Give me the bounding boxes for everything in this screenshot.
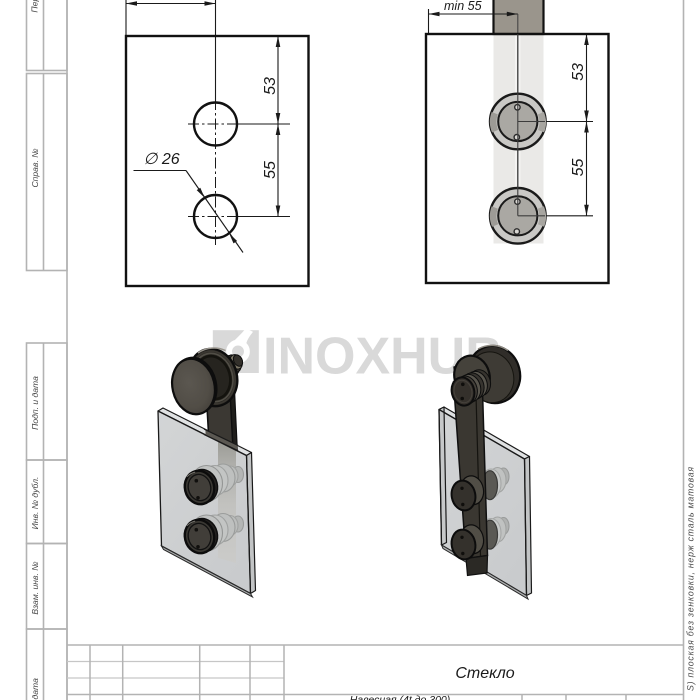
svg-text:Взам. инв. №: Взам. инв. № [30,561,40,614]
svg-text:Перв. примен.: Перв. примен. [30,0,40,13]
svg-text:Справ. №: Справ. № [30,148,40,187]
svg-text:min 55: min 55 [444,0,482,13]
svg-text:Подп. и дата: Подп. и дата [30,678,40,700]
svg-text:Навесная (4t до 300): Навесная (4t до 300) [350,694,451,700]
svg-text:∅ 26: ∅ 26 [144,151,180,168]
svg-text:Инв. № дубл.: Инв. № дубл. [30,477,40,530]
svg-text:S) плоская без зенковки, нерж: S) плоская без зенковки, нерж сталь мато… [686,466,696,691]
svg-text:53: 53 [570,63,587,81]
svg-text:53: 53 [262,77,279,95]
svg-text:55: 55 [570,159,587,177]
svg-text:Стекло: Стекло [455,665,514,682]
svg-text:55: 55 [262,161,279,179]
svg-text:Подп. и дата: Подп. и дата [30,376,40,430]
